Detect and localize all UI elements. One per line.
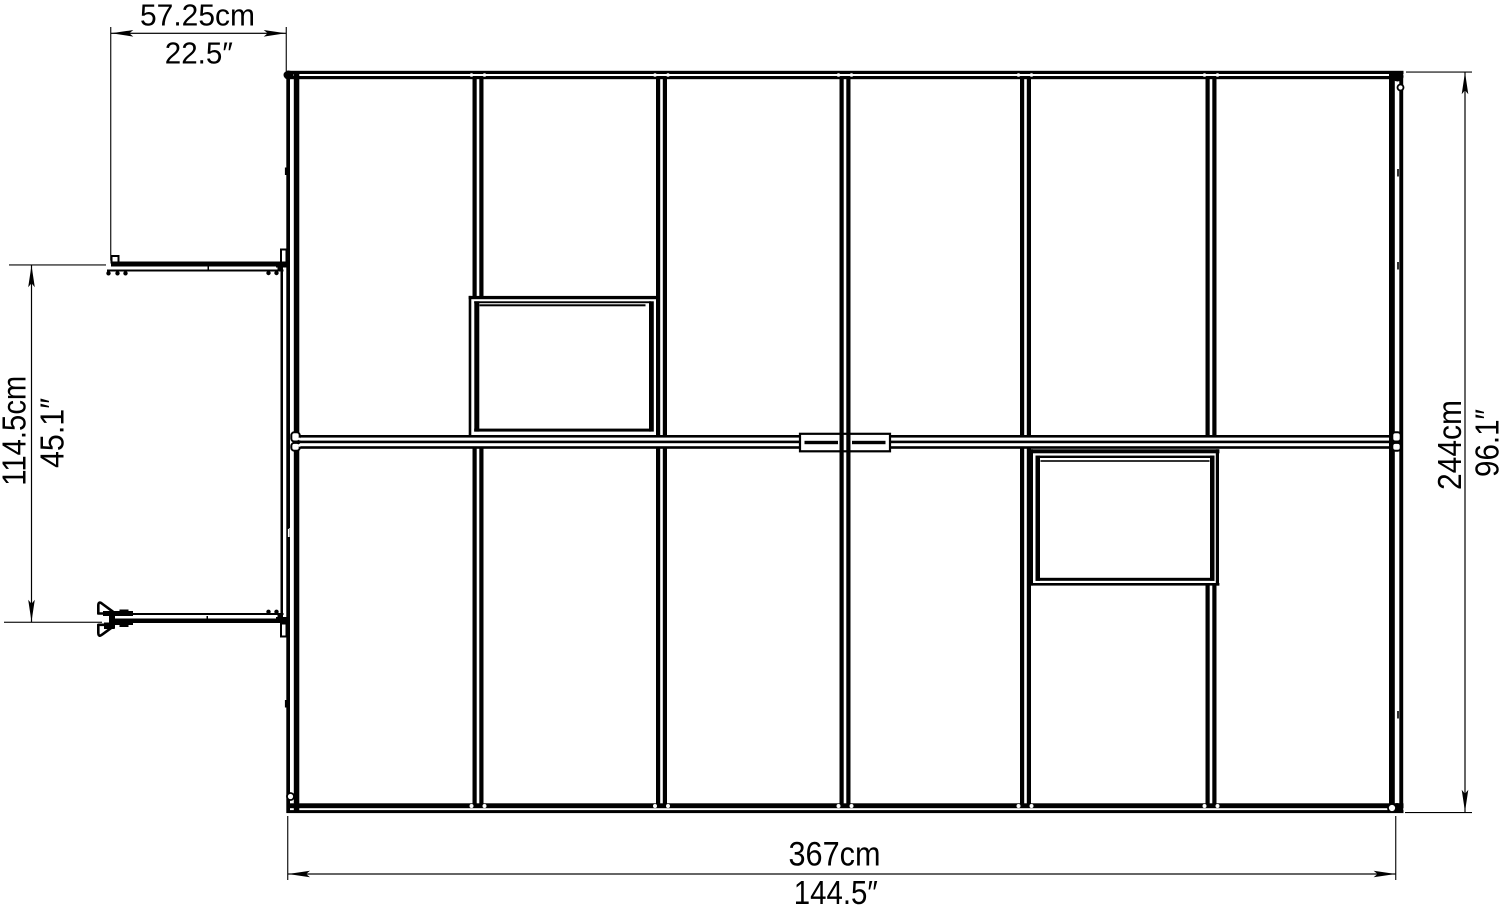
svg-text:96.1″: 96.1″: [1469, 409, 1500, 477]
svg-text:367cm: 367cm: [789, 836, 881, 874]
svg-text:45.1″: 45.1″: [34, 398, 71, 468]
svg-text:57.25cm: 57.25cm: [140, 0, 255, 32]
svg-text:22.5″: 22.5″: [165, 36, 233, 71]
svg-text:144.5″: 144.5″: [794, 874, 878, 906]
svg-text:114.5cm: 114.5cm: [0, 376, 33, 486]
svg-text:244cm: 244cm: [1431, 400, 1468, 490]
